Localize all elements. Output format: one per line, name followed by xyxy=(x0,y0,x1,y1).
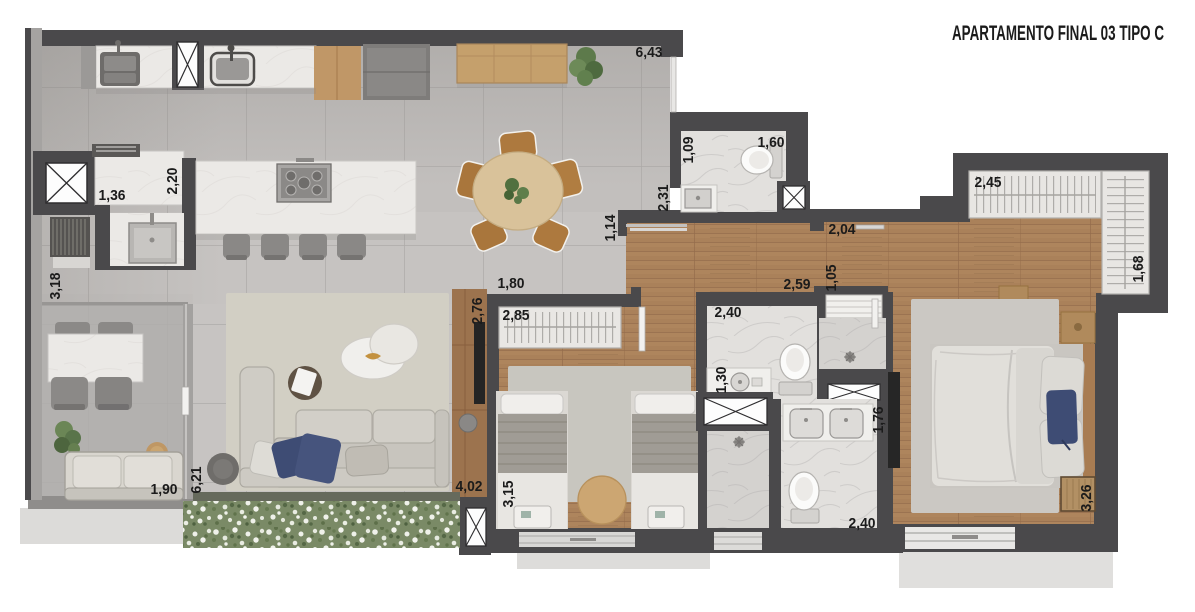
svg-text:4,02: 4,02 xyxy=(456,478,483,495)
svg-text:6,43: 6,43 xyxy=(636,44,663,61)
svg-text:3,15: 3,15 xyxy=(500,481,517,508)
svg-text:1,60: 1,60 xyxy=(758,134,785,151)
svg-text:1,80: 1,80 xyxy=(498,275,525,292)
svg-text:6,21: 6,21 xyxy=(188,467,205,494)
svg-text:1,14: 1,14 xyxy=(602,214,619,242)
svg-text:1,09: 1,09 xyxy=(680,137,697,164)
svg-text:2,59: 2,59 xyxy=(784,276,811,293)
svg-text:2,40: 2,40 xyxy=(715,304,742,321)
svg-text:1,90: 1,90 xyxy=(151,481,178,498)
svg-text:2,20: 2,20 xyxy=(164,168,181,195)
svg-text:APARTAMENTO FINAL 03 TIPO C: APARTAMENTO FINAL 03 TIPO C xyxy=(952,22,1164,45)
svg-text:1,05: 1,05 xyxy=(823,265,840,292)
svg-text:3,26: 3,26 xyxy=(1078,485,1095,512)
svg-text:3,18: 3,18 xyxy=(47,273,64,300)
svg-text:2,40: 2,40 xyxy=(849,515,876,532)
svg-text:2,76: 2,76 xyxy=(469,298,486,325)
svg-text:1,76: 1,76 xyxy=(870,407,887,434)
svg-text:1,68: 1,68 xyxy=(1130,256,1147,283)
svg-text:1,30: 1,30 xyxy=(713,367,730,394)
svg-text:1,36: 1,36 xyxy=(99,187,126,204)
svg-text:2,31: 2,31 xyxy=(655,185,672,212)
svg-text:2,45: 2,45 xyxy=(975,174,1002,191)
svg-text:2,04: 2,04 xyxy=(829,221,857,238)
svg-text:2,85: 2,85 xyxy=(503,307,530,324)
